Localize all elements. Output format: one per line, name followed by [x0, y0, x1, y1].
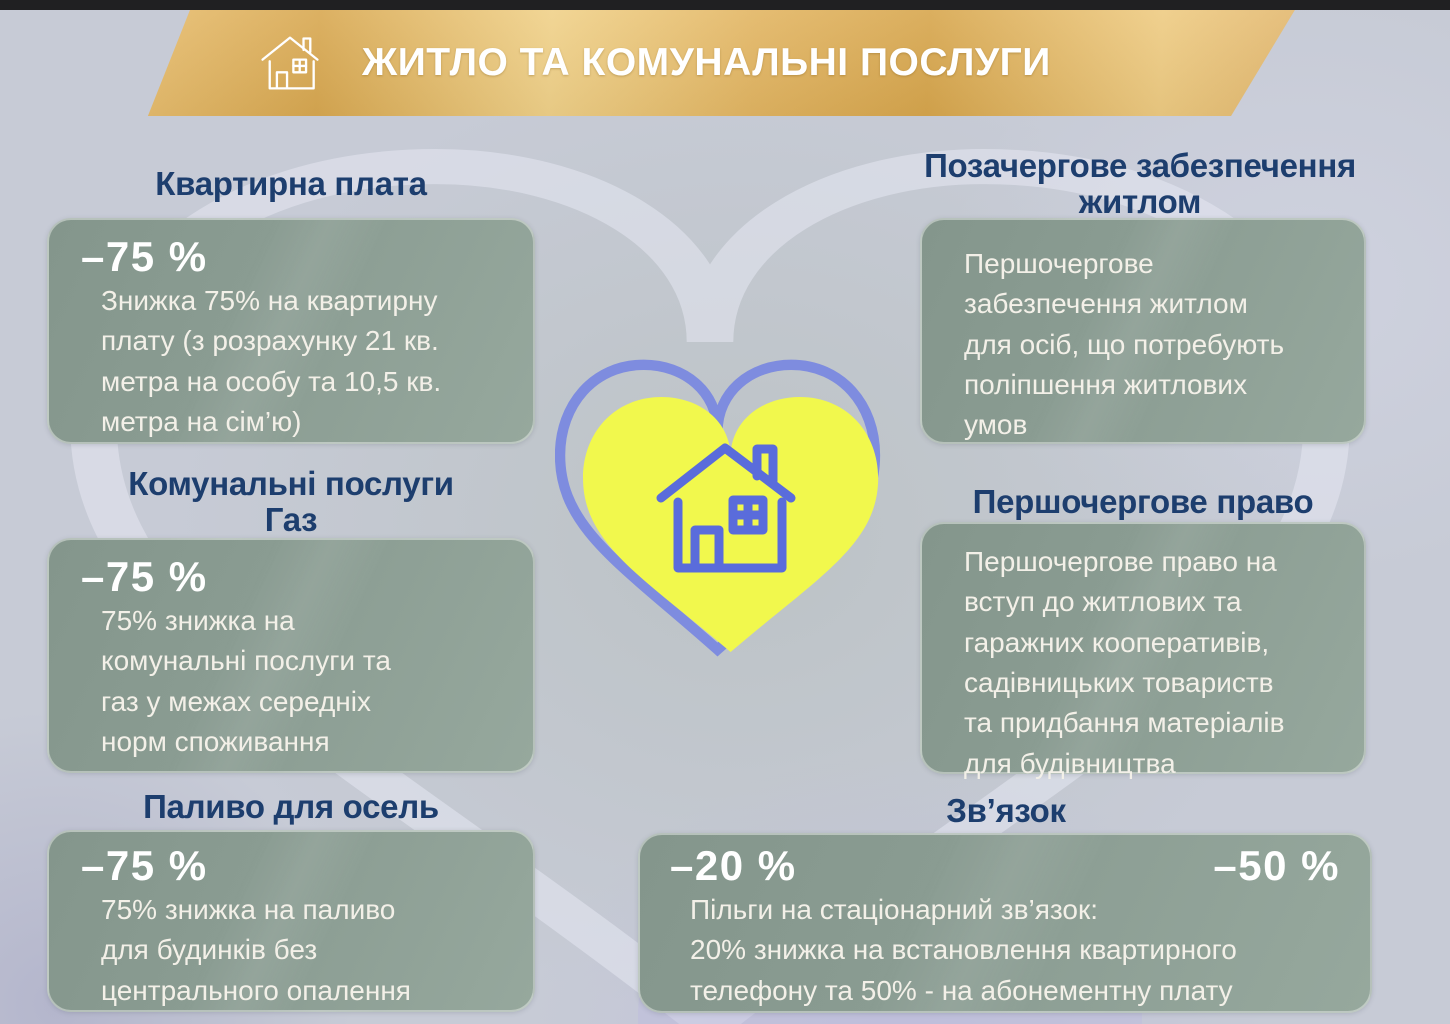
discount-badge: –75 %	[81, 235, 511, 279]
card-zvyazok: –20 % –50 % Пільги на стаціонарний зв’яз…	[638, 833, 1372, 1013]
banner-content: ЖИТЛО ТА КОМУНАЛЬНІ ПОСЛУГИ	[260, 10, 1051, 116]
top-bar	[0, 0, 1450, 10]
card-text: 75% знижка на паливо для будинків без це…	[81, 890, 511, 1011]
discount-row: –20 % –50 %	[670, 844, 1340, 888]
card-text: Пільги на стаціонарний зв’язок: 20% зниж…	[670, 890, 1340, 1011]
discount-badge-left: –20 %	[670, 844, 797, 888]
card-text: Першочергове право на вступ до житлових …	[964, 542, 1346, 784]
heading-kvartyrna-plata: Квартирна плата	[47, 166, 535, 202]
heading-pershochergove-pravo: Першочергове право	[920, 484, 1366, 520]
card-text: 75% знижка на комунальні послуги та газ …	[81, 601, 511, 762]
heading-komunalni-poslugy-gaz: Комунальні послуги Газ	[47, 466, 535, 537]
heading-palyvo-dlya-osel: Паливо для осель	[47, 789, 535, 825]
card-text: Першочергове забезпечення житлом для осі…	[964, 244, 1346, 446]
banner-title: ЖИТЛО ТА КОМУНАЛЬНІ ПОСЛУГИ	[362, 41, 1051, 85]
discount-badge-right: –50 %	[1213, 844, 1340, 888]
house-in-heart-icon	[555, 350, 895, 670]
heading-zvyazok: Зв’язок	[640, 793, 1372, 829]
card-komunalni-poslugy: –75 % 75% знижка на комунальні послуги т…	[47, 538, 535, 773]
house-icon	[260, 30, 320, 96]
card-palyvo: –75 % 75% знижка на паливо для будинків …	[47, 830, 535, 1012]
card-kvartyrna-plata: –75 % Знижка 75% на квартирну плату (з р…	[47, 218, 535, 444]
discount-badge: –75 %	[81, 844, 511, 888]
card-pozachergove: Першочергове забезпечення житлом для осі…	[920, 218, 1366, 444]
infographic-canvas: ЖИТЛО ТА КОМУНАЛЬНІ ПОСЛУГИ Квартирна пл…	[0, 0, 1450, 1024]
card-pershochergove-pravo: Першочергове право на вступ до житлових …	[920, 522, 1366, 774]
card-text: Знижка 75% на квартирну плату (з розраху…	[81, 281, 511, 442]
discount-badge: –75 %	[81, 555, 511, 599]
heading-pozachergove-zabezpechennya: Позачергове забезпечення житлом	[903, 148, 1377, 219]
